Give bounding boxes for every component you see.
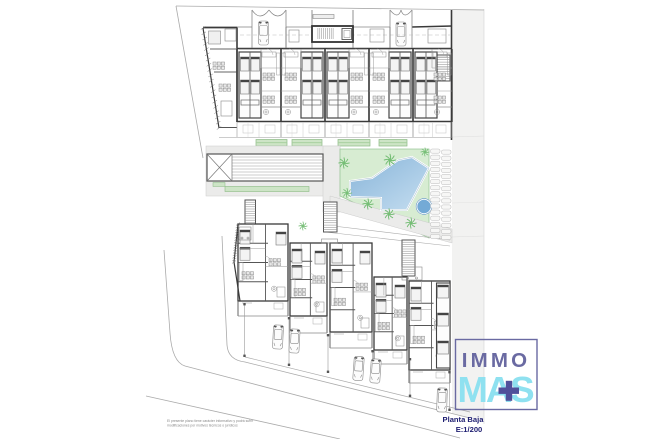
svg-text:modificaciones por motivos téc: modificaciones por motivos técnicos o ju… (167, 424, 238, 428)
svg-text:MAS: MAS (457, 369, 533, 410)
svg-text:E:1/200: E:1/200 (456, 425, 483, 434)
svg-text:Planta Baja: Planta Baja (443, 415, 485, 424)
svg-text:El presente plano tiene ca: El presente plano tiene carácter informa… (167, 419, 254, 423)
